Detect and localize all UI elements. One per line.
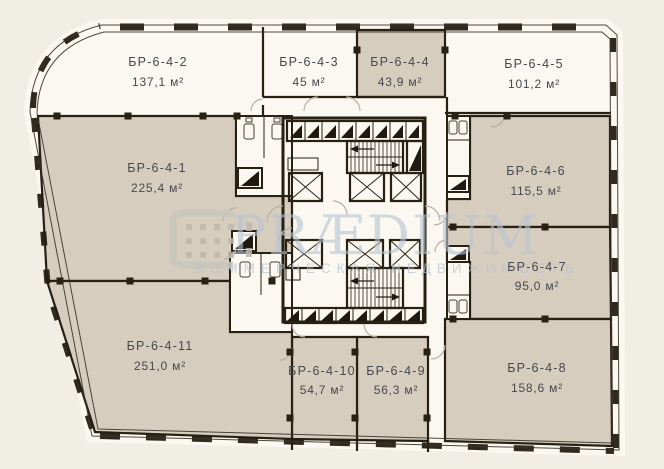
unit-label: БР-6-4-10 [288, 364, 356, 378]
unit-area: 115,5 м² [510, 184, 561, 198]
unit-area: 158,6 м² [511, 381, 563, 395]
floor-plan-svg: PRÆDIUM КОММЕРЧЕСКАЯ НЕДВИЖИМОСТЬ БР-6-4… [0, 0, 664, 469]
unit-area: 137,1 м² [132, 75, 184, 89]
unit-label: БР-6-4-6 [506, 164, 565, 178]
unit-area: 101,2 м² [508, 77, 560, 91]
unit-label: БР-6-4-3 [279, 55, 338, 69]
unit-label: БР-6-4-7 [507, 260, 566, 274]
unit-label: БР-6-4-5 [504, 57, 563, 71]
unit-label: БР-6-4-4 [370, 55, 429, 69]
unit-area: 56,3 м² [374, 383, 419, 397]
unit-label: БР-6-4-1 [127, 161, 186, 175]
unit-label: БР-6-4-9 [366, 364, 425, 378]
watermark-brand: PRÆDIUM [230, 204, 540, 267]
unit-label: БР-6-4-2 [128, 55, 187, 69]
unit-area: 95,0 м² [515, 279, 560, 293]
unit-area: 45 м² [293, 75, 326, 89]
unit-area: 225,4 м² [131, 181, 183, 195]
unit-label: БР-6-4-8 [507, 361, 566, 375]
floor-plan-stage: PRÆDIUM КОММЕРЧЕСКАЯ НЕДВИЖИМОСТЬ БР-6-4… [0, 0, 664, 469]
stairs-upper [347, 141, 403, 173]
unit-area: 43,9 м² [378, 75, 423, 89]
unit-area: 54,7 м² [300, 383, 345, 397]
unit-label: БР-6-4-11 [127, 339, 194, 353]
unit-area: 251,0 м² [134, 359, 186, 373]
